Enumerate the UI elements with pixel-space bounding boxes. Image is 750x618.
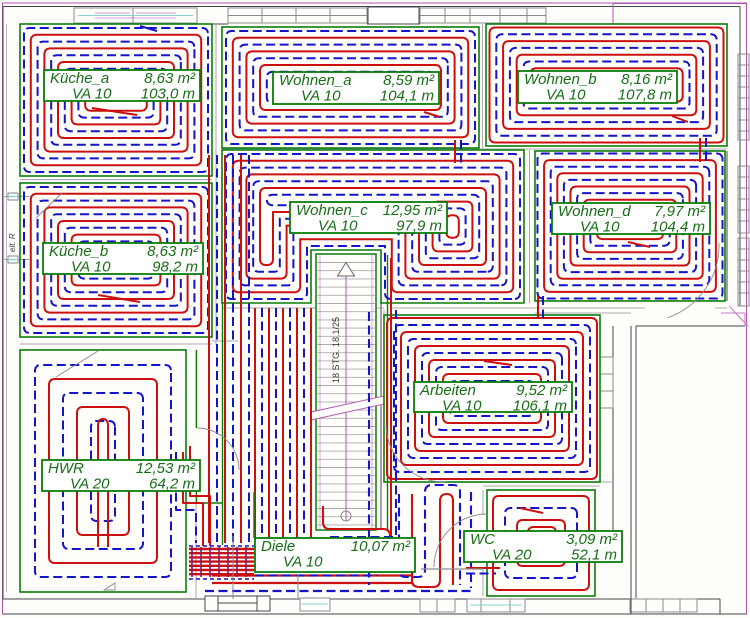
svg-text:Wohnen_d: Wohnen_d	[558, 203, 631, 220]
svg-text:Wohnen_b: Wohnen_b	[524, 71, 597, 88]
svg-text:104,1 m: 104,1 m	[380, 88, 434, 105]
svg-text:VA 10: VA 10	[318, 218, 358, 235]
svg-text:12,53 m²: 12,53 m²	[136, 460, 196, 477]
svg-text:VA 20: VA 20	[492, 547, 532, 564]
svg-text:Diele: Diele	[261, 538, 295, 555]
svg-text:10,07 m²: 10,07 m²	[351, 538, 411, 555]
svg-text:97,9 m: 97,9 m	[396, 218, 442, 235]
svg-text:104,4 m: 104,4 m	[651, 219, 705, 236]
svg-text:107,8 m: 107,8 m	[618, 87, 672, 104]
svg-text:VA 10: VA 10	[580, 219, 620, 236]
svg-text:Küche_b: Küche_b	[49, 243, 108, 260]
svg-text:64,2 m: 64,2 m	[149, 476, 195, 493]
svg-text:elt. R: elt. R	[8, 233, 17, 252]
svg-text:VA 10: VA 10	[71, 259, 111, 276]
svg-text:VA 10: VA 10	[442, 398, 482, 415]
svg-text:VA 10: VA 10	[283, 554, 323, 571]
svg-text:Wohnen_a: Wohnen_a	[279, 72, 352, 89]
svg-text:9,52 m²: 9,52 m²	[516, 382, 568, 399]
svg-text:8,63 m²: 8,63 m²	[147, 243, 199, 260]
svg-text:3,09 m²: 3,09 m²	[566, 531, 618, 548]
svg-text:103,0 m: 103,0 m	[141, 86, 195, 103]
svg-text:Wohnen_c: Wohnen_c	[296, 202, 368, 219]
svg-text:8,59 m²: 8,59 m²	[383, 72, 435, 89]
svg-text:8,16 m²: 8,16 m²	[621, 71, 673, 88]
svg-text:VA 10: VA 10	[72, 86, 112, 103]
svg-text:7,97 m²: 7,97 m²	[654, 203, 706, 220]
svg-text:98,2 m: 98,2 m	[152, 259, 198, 276]
svg-text:Küche_a: Küche_a	[50, 70, 109, 87]
svg-text:Arbeiten: Arbeiten	[419, 382, 476, 399]
svg-text:VA 10: VA 10	[546, 87, 586, 104]
svg-text:12,95 m²: 12,95 m²	[383, 202, 443, 219]
svg-text:52,1 m: 52,1 m	[571, 547, 617, 564]
svg-text:VA 10: VA 10	[301, 88, 341, 105]
svg-text:18 STG. 18.1/25: 18 STG. 18.1/25	[331, 317, 341, 383]
svg-text:WC: WC	[470, 531, 495, 548]
svg-text:VA 20: VA 20	[70, 476, 110, 493]
svg-text:8,63 m²: 8,63 m²	[144, 70, 196, 87]
svg-text:HWR: HWR	[48, 460, 84, 477]
svg-text:106,1 m: 106,1 m	[513, 398, 567, 415]
